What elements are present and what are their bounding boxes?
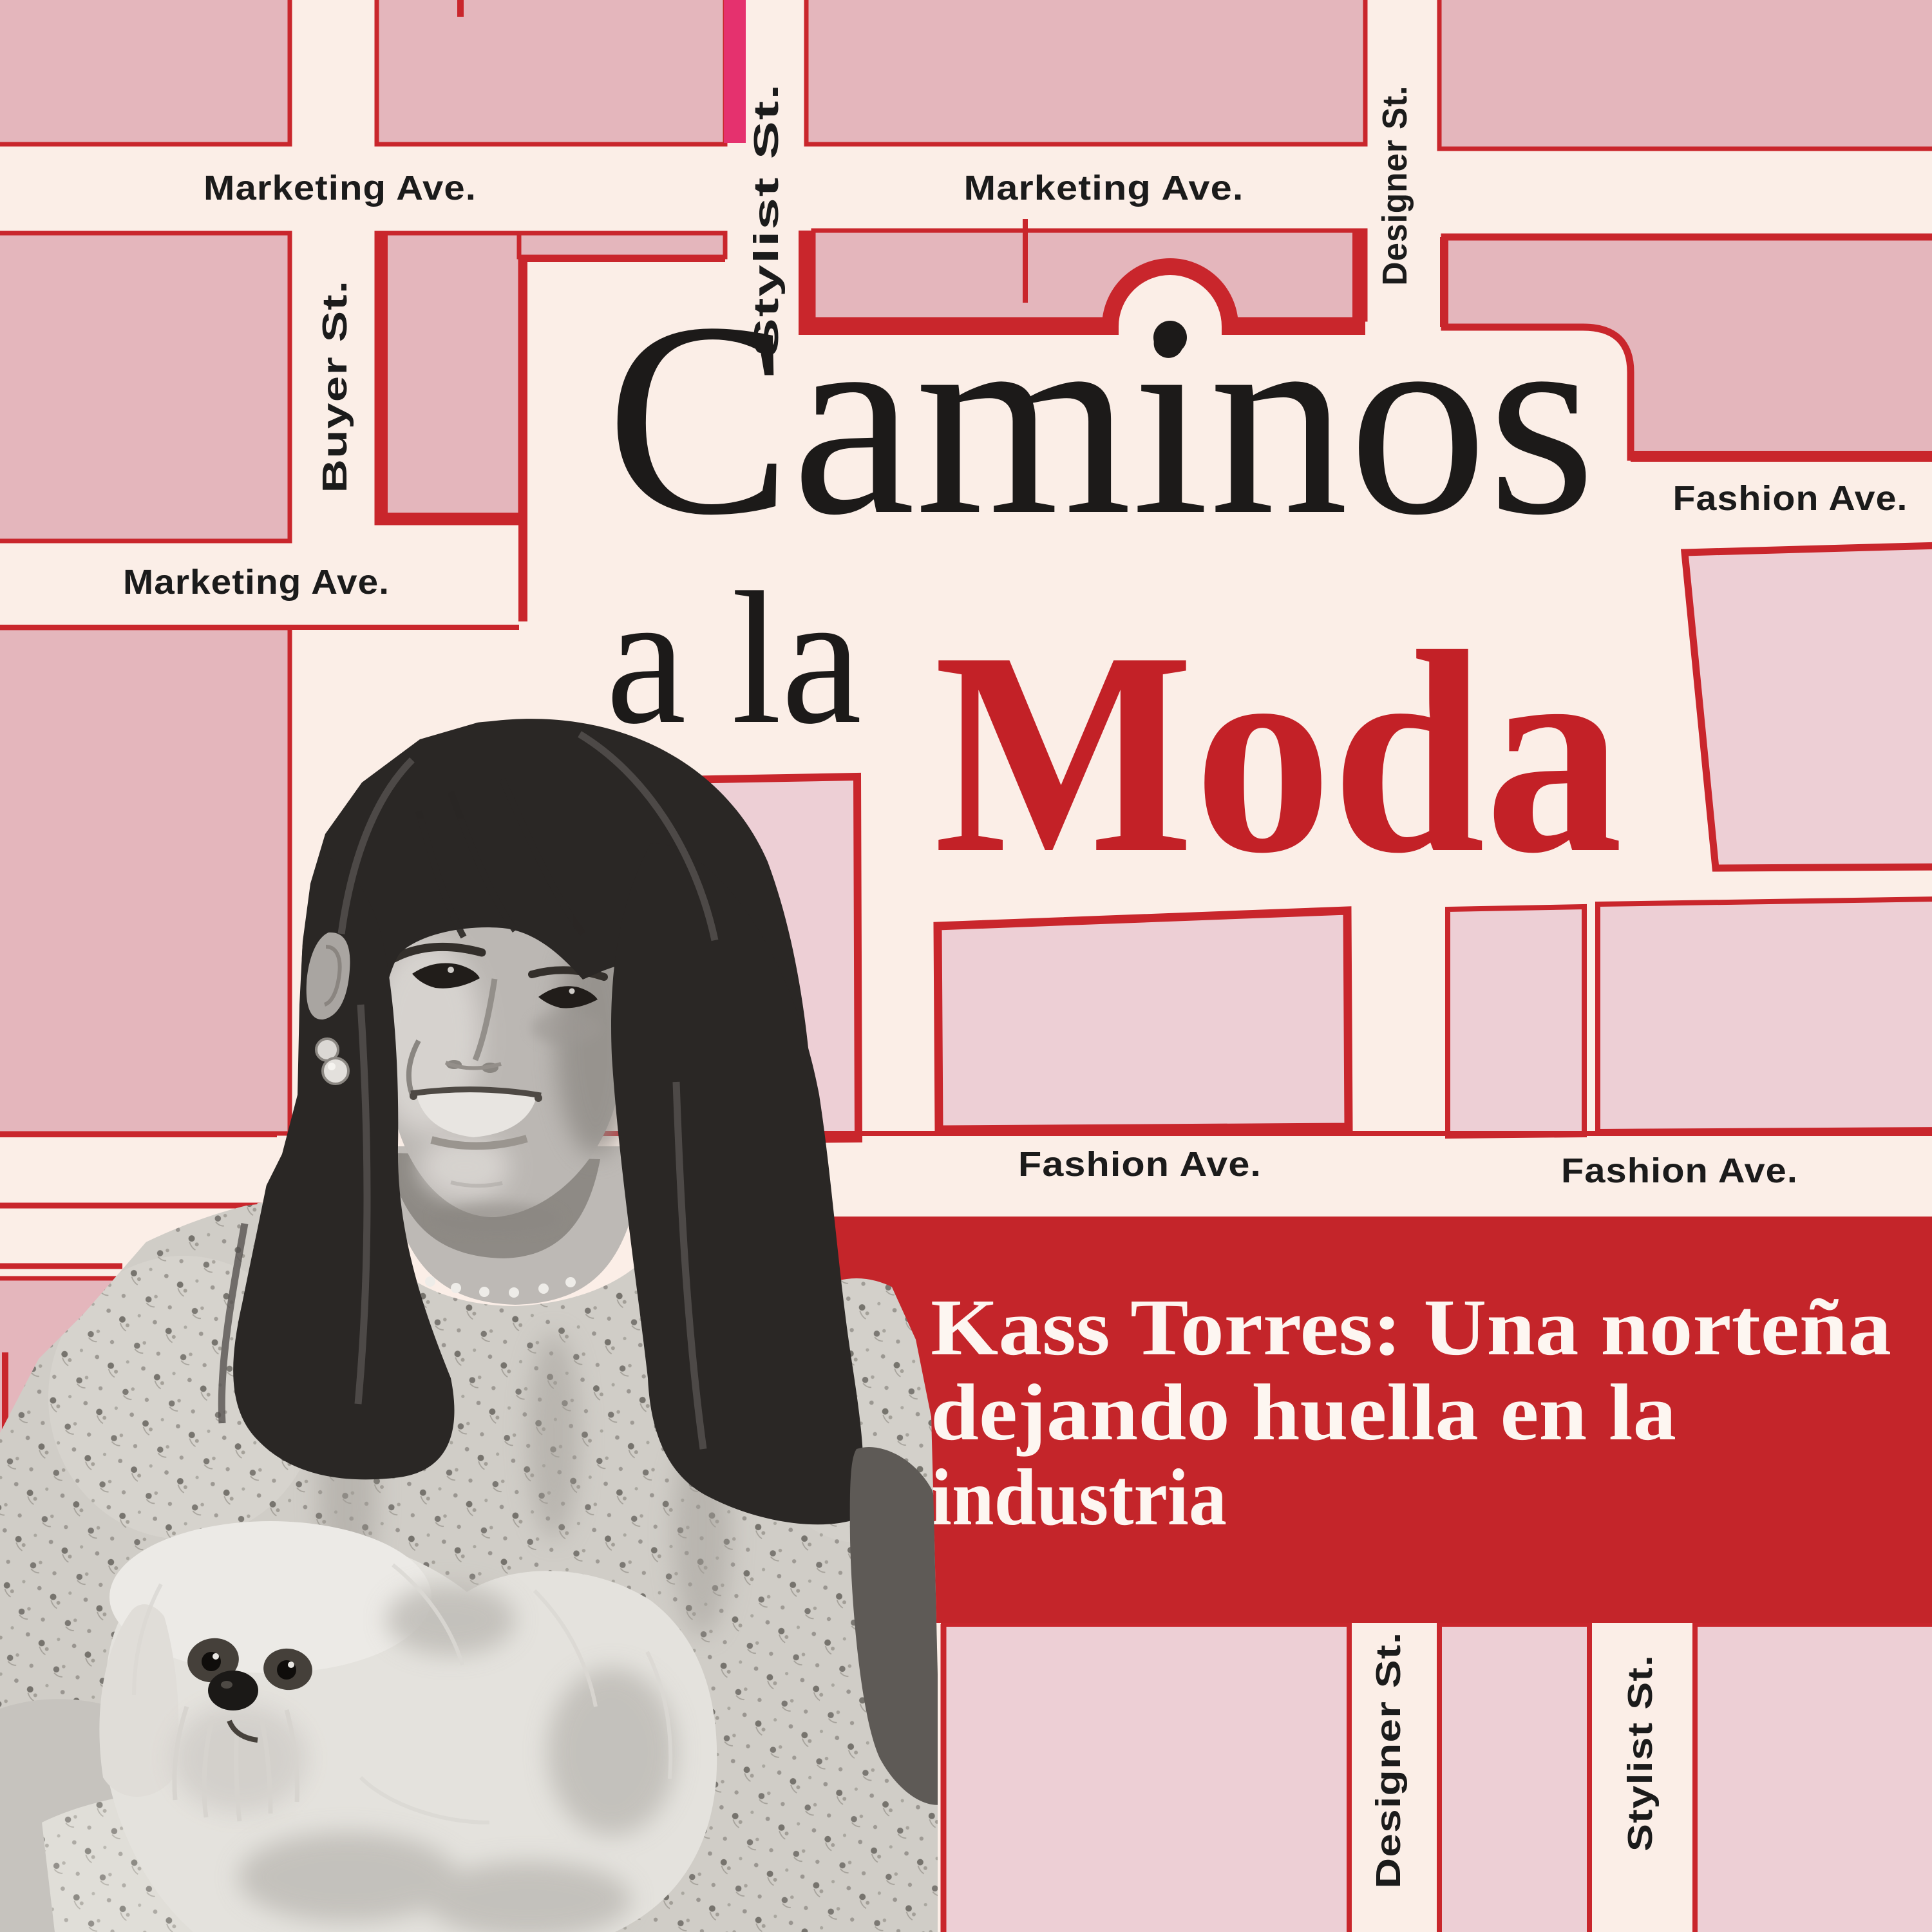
svg-text:Fashion Ave.: Fashion Ave. bbox=[1673, 479, 1908, 518]
svg-text:Fashion Ave.: Fashion Ave. bbox=[1561, 1151, 1798, 1190]
svg-text:dejando huella en la: dejando huella en la bbox=[931, 1368, 1676, 1457]
svg-text:Designer St.: Designer St. bbox=[1369, 1632, 1408, 1889]
svg-text:Stylist St.: Stylist St. bbox=[1621, 1654, 1660, 1851]
svg-text:Moda: Moda bbox=[934, 592, 1623, 913]
svg-text:Designer St.: Designer St. bbox=[1376, 86, 1414, 286]
svg-text:industria: industria bbox=[931, 1454, 1227, 1542]
svg-text:Marketing Ave.: Marketing Ave. bbox=[204, 169, 477, 207]
svg-text:Caminos: Caminos bbox=[606, 266, 1596, 573]
svg-text:Fashion Ave.: Fashion Ave. bbox=[1018, 1145, 1262, 1184]
svg-text:Kass Torres: Una norteña: Kass Torres: Una norteña bbox=[931, 1283, 1891, 1372]
svg-text:Marketing Ave.: Marketing Ave. bbox=[964, 169, 1244, 207]
svg-text:Marketing Ave.: Marketing Ave. bbox=[123, 563, 390, 601]
svg-text:a la: a la bbox=[606, 553, 862, 763]
svg-text:Buyer St.: Buyer St. bbox=[316, 280, 354, 493]
